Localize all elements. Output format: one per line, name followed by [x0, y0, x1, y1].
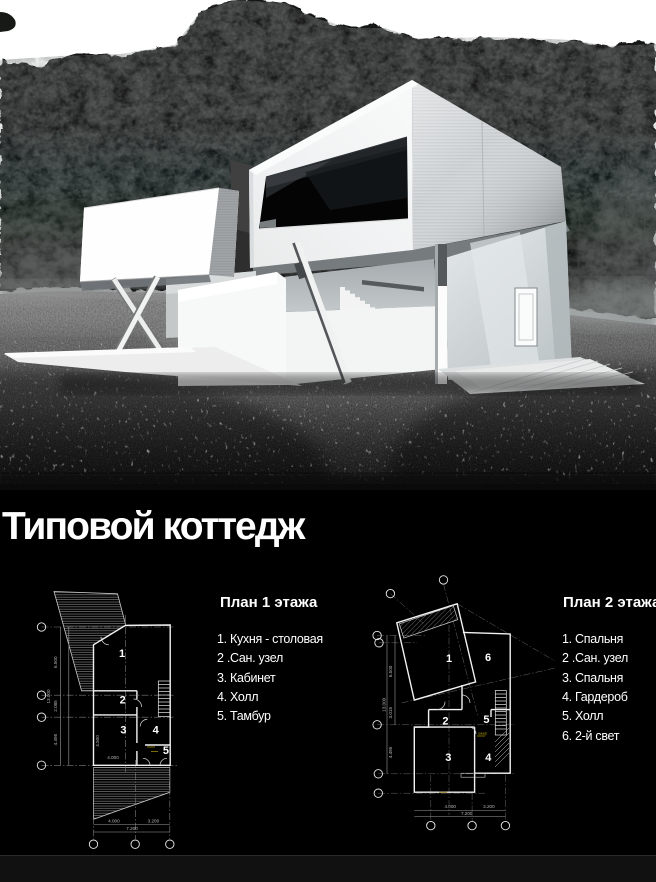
svg-text:6: 6 [485, 652, 491, 664]
svg-text:3: 3 [120, 725, 126, 737]
svg-text:6.500: 6.500 [388, 665, 393, 677]
svg-text:4: 4 [485, 752, 492, 764]
svg-text:1: 1 [119, 648, 125, 660]
svg-text:3: 3 [445, 752, 451, 764]
svg-text:4.000: 4.000 [444, 804, 456, 809]
svg-text:7.200: 7.200 [461, 811, 473, 816]
svg-text:6.500: 6.500 [53, 656, 58, 668]
svg-text:4.495: 4.495 [53, 733, 58, 745]
svg-text:3.200: 3.200 [483, 804, 495, 809]
svg-text:4.500: 4.500 [95, 735, 100, 747]
svg-text:4.000: 4.000 [108, 819, 120, 824]
svg-text:3.200: 3.200 [148, 819, 160, 824]
svg-text:2.085: 2.085 [53, 700, 58, 712]
svg-text:4: 4 [153, 725, 160, 737]
svg-text:шкаф: шкаф [478, 732, 487, 736]
svg-text:13.000: 13.000 [381, 697, 386, 711]
svg-text:13.000: 13.000 [46, 689, 51, 703]
svg-text:5: 5 [483, 714, 489, 726]
svg-text:5: 5 [163, 745, 169, 757]
svg-text:1: 1 [446, 653, 452, 665]
svg-text:4.495: 4.495 [388, 746, 393, 758]
svg-text:3.015: 3.015 [388, 707, 393, 719]
svg-text:2: 2 [442, 716, 448, 728]
svg-text:4.000: 4.000 [107, 755, 119, 760]
svg-text:7.200: 7.200 [126, 826, 138, 831]
svg-text:2: 2 [120, 694, 126, 706]
